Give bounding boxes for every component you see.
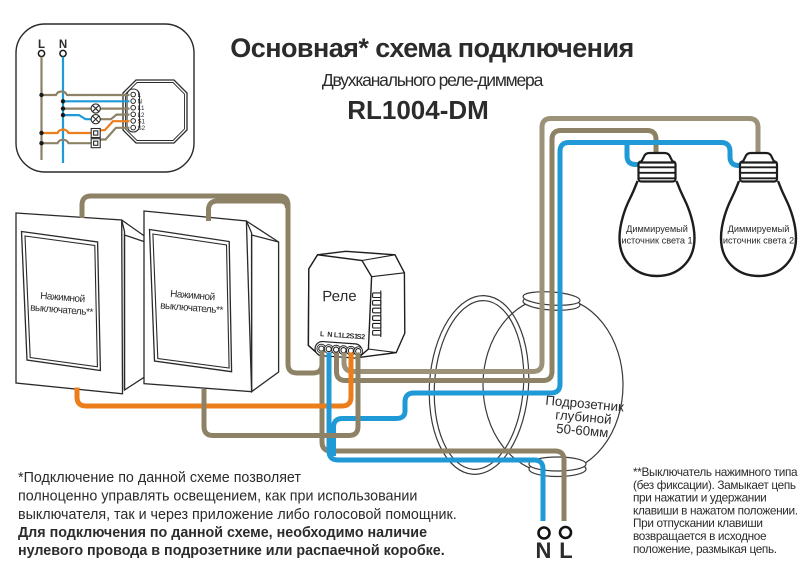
svg-text:Основная* схема подключения: Основная* схема подключения — [230, 33, 633, 63]
svg-text:Диммируемый: Диммируемый — [728, 224, 790, 234]
svg-text:полноценно управлять освещение: полноценно управлять освещением, как при… — [18, 489, 417, 505]
svg-text:S2: S2 — [138, 125, 146, 132]
svg-text:источник света 2: источник света 2 — [723, 236, 794, 246]
svg-text:L: L — [38, 39, 45, 51]
svg-text:N: N — [327, 330, 333, 339]
svg-text:Для подключения по данной схем: Для подключения по данной схеме, необход… — [18, 525, 427, 541]
svg-text:N: N — [59, 39, 67, 51]
svg-text:S2: S2 — [356, 332, 365, 342]
svg-text:положение, размыкая цепь.: положение, размыкая цепь. — [633, 542, 777, 556]
svg-text:нулевого провода в подрозетник: нулевого провода в подрозетнике или расп… — [18, 543, 445, 559]
svg-text:L: L — [559, 538, 572, 561]
svg-text:Двухканального реле-диммера: Двухканального реле-диммера — [322, 70, 544, 90]
svg-text:N: N — [536, 538, 552, 561]
svg-text:Диммируемый: Диммируемый — [626, 224, 688, 234]
svg-text:Реле: Реле — [322, 288, 357, 306]
svg-text:RL1004-DM: RL1004-DM — [347, 95, 489, 125]
svg-text:выключателя, так и через прило: выключателя, так и через приложение либо… — [18, 507, 457, 523]
svg-text:источник света 1: источник света 1 — [621, 236, 692, 246]
svg-text:*Подключение по данной схеме п: *Подключение по данной схеме позволяет — [18, 470, 301, 486]
